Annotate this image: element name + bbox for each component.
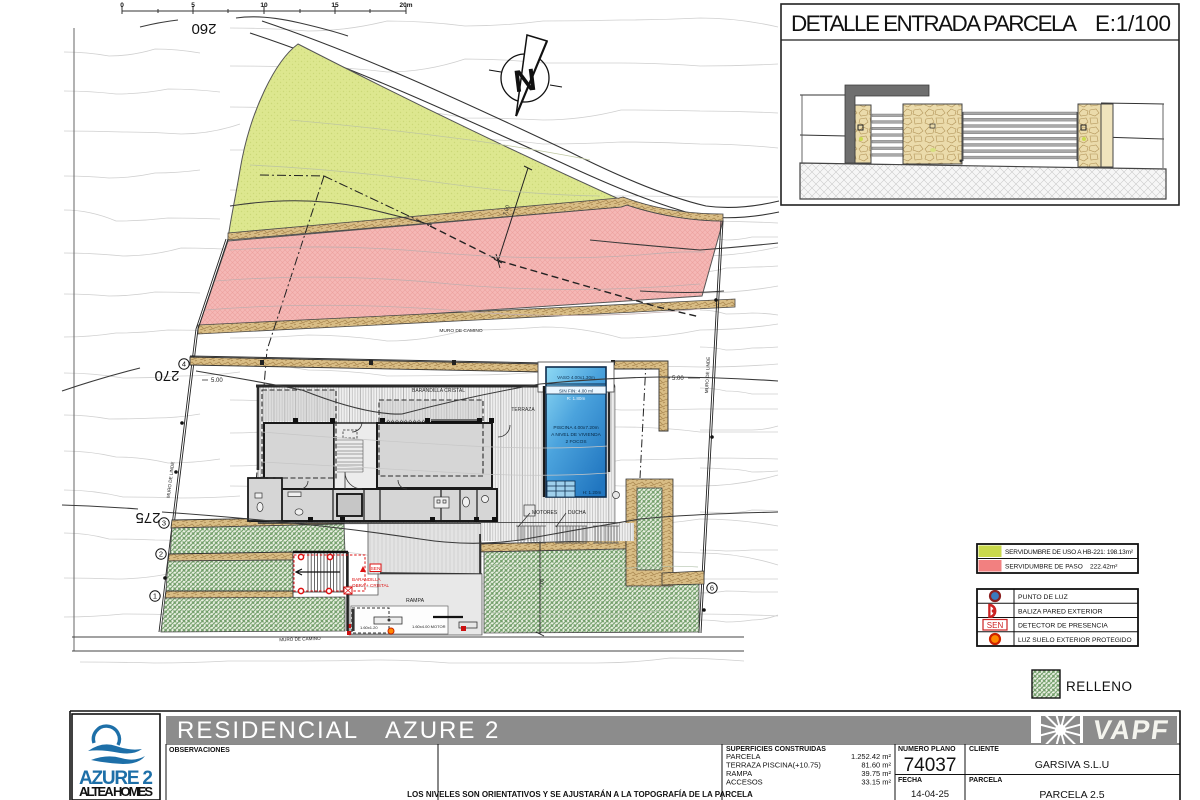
svg-text:BARANDILLA: BARANDILLA	[352, 577, 382, 582]
svg-text:SEN: SEN	[371, 566, 381, 572]
svg-text:14-04-25: 14-04-25	[911, 789, 949, 800]
svg-text:PISCINA 4.00x7.20m: PISCINA 4.00x7.20m	[553, 425, 598, 431]
svg-text:5: 5	[191, 2, 195, 9]
svg-text:SEN: SEN	[987, 621, 1004, 630]
svg-text:RAMPA: RAMPA	[406, 598, 425, 604]
svg-text:PARCELA 2.5: PARCELA 2.5	[1039, 789, 1104, 800]
svg-text:VAPF: VAPF	[1091, 714, 1171, 745]
svg-text:R: 1.80m: R: 1.80m	[567, 396, 586, 401]
svg-text:TERRAZA: TERRAZA	[511, 407, 535, 413]
svg-text:4: 4	[182, 360, 186, 369]
svg-text:260: 260	[191, 20, 216, 37]
svg-text:20m: 20m	[399, 2, 412, 9]
svg-text:6: 6	[710, 584, 714, 593]
svg-text:H: 1.20m: H: 1.20m	[583, 490, 602, 495]
svg-text:A NIVEL DE VIVIENDA: A NIVEL DE VIVIENDA	[551, 432, 601, 438]
svg-text:SERVIDUMBRE DE PASO 222.42m: SERVIDUMBRE DE PASO 222.42m²	[1005, 564, 1118, 571]
svg-text:RESIDENCIAL AZURE 2: RESIDENCIAL AZURE 2	[177, 717, 500, 744]
svg-text:E:1/100: E:1/100	[1095, 11, 1171, 36]
svg-text:1: 1	[153, 592, 157, 601]
svg-text:275: 275	[135, 509, 160, 526]
svg-text:3: 3	[162, 519, 166, 528]
svg-text:7.00: 7.00	[539, 578, 545, 588]
svg-text:LUZ SUELO EXTERIOR PROTEGIDO: LUZ SUELO EXTERIOR PROTEGIDO	[1018, 637, 1132, 644]
svg-text:BARANDILLA CRISTAL: BARANDILLA CRISTAL	[412, 388, 465, 394]
svg-text:PUNTO DE LUZ: PUNTO DE LUZ	[1018, 594, 1068, 601]
svg-text:MOTORES: MOTORES	[532, 510, 558, 516]
svg-text:5.00: 5.00	[211, 378, 223, 384]
svg-text:OBSERVACIONES: OBSERVACIONES	[169, 747, 230, 754]
svg-text:2 FOCOS: 2 FOCOS	[565, 439, 586, 445]
svg-text:CLIENTE: CLIENTE	[969, 746, 999, 753]
svg-text:DUCHA: DUCHA	[568, 510, 586, 516]
svg-text:2: 2	[159, 550, 163, 559]
svg-text:BALIZA PARED EXTERIOR: BALIZA PARED EXTERIOR	[1018, 608, 1103, 615]
svg-text:N: N	[512, 62, 538, 99]
svg-text:SERVIDUMBRE DE USO A HB-221: 1: SERVIDUMBRE DE USO A HB-221: 198.13m²	[1005, 549, 1134, 556]
svg-text:OBRA + CRISTAL: OBRA + CRISTAL	[352, 583, 390, 588]
svg-text:ALTEA HOMES: ALTEA HOMES	[79, 784, 153, 799]
svg-text:33.15 m²: 33.15 m²	[861, 778, 891, 787]
svg-text:MURO DE CAMINO: MURO DE CAMINO	[439, 328, 482, 334]
svg-text:ACCESOS: ACCESOS	[726, 778, 763, 787]
svg-text:GARSIVA S.L.U: GARSIVA S.L.U	[1035, 759, 1110, 771]
svg-text:74037: 74037	[904, 755, 957, 776]
svg-text:LOS NIVELES SON ORIENTATIVOS Y: LOS NIVELES SON ORIENTATIVOS Y SE AJUSTA…	[407, 790, 753, 799]
svg-text:270: 270	[154, 367, 179, 384]
svg-text:10: 10	[260, 2, 268, 9]
svg-text:15: 15	[331, 2, 339, 9]
svg-text:DETECTOR DE PRESENCIA: DETECTOR DE PRESENCIA	[1018, 623, 1108, 630]
svg-text:FECHA: FECHA	[898, 777, 922, 784]
svg-text:DETALLE ENTRADA PARCELA: DETALLE ENTRADA PARCELA	[791, 11, 1077, 36]
svg-text:0: 0	[120, 2, 124, 9]
svg-text:1.60x4.00 MOTOR: 1.60x4.00 MOTOR	[412, 624, 446, 629]
svg-text:NUMERO PLANO: NUMERO PLANO	[898, 746, 956, 753]
svg-text:SIN FIN: 4.00 ml: SIN FIN: 4.00 ml	[559, 389, 593, 394]
svg-text:VASO 4.00x1.30m: VASO 4.00x1.30m	[557, 375, 595, 380]
svg-text:1.60x1.20: 1.60x1.20	[360, 625, 378, 630]
svg-text:RELLENO: RELLENO	[1066, 679, 1133, 694]
svg-text:PARCELA: PARCELA	[969, 777, 1002, 784]
